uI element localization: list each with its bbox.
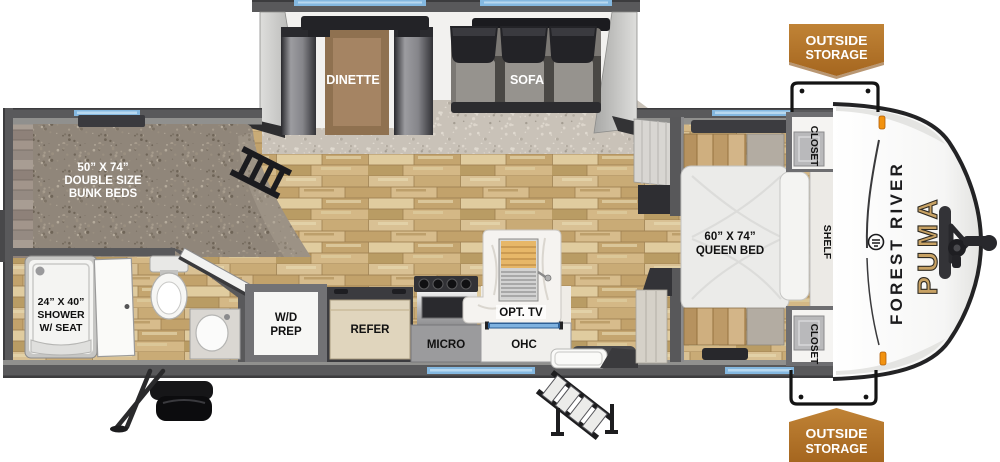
svg-text:PREP: PREP <box>270 326 302 338</box>
svg-text:PUMA: PUMA <box>912 195 943 295</box>
svg-text:CLOSET: CLOSET <box>808 126 819 167</box>
svg-text:SHOWER: SHOWER <box>37 309 85 321</box>
svg-text:STORAGE: STORAGE <box>806 47 868 62</box>
svg-text:SHELF: SHELF <box>821 225 833 260</box>
svg-text:W/ SEAT: W/ SEAT <box>40 322 84 334</box>
svg-text:QUEEN BED: QUEEN BED <box>696 245 764 257</box>
svg-text:DOUBLE SIZE: DOUBLE SIZE <box>64 175 142 187</box>
svg-text:OUTSIDE: OUTSIDE <box>806 33 868 48</box>
svg-text:W/D: W/D <box>275 312 297 324</box>
svg-text:BUNK BEDS: BUNK BEDS <box>69 188 138 200</box>
svg-text:CLOSET: CLOSET <box>808 324 819 365</box>
svg-text:SOFA: SOFA <box>510 73 544 87</box>
svg-text:50” X 74”: 50” X 74” <box>77 162 128 174</box>
svg-text:60” X 74”: 60” X 74” <box>704 231 755 243</box>
svg-text:FOREST RIVER: FOREST RIVER <box>887 161 906 325</box>
svg-text:REFER: REFER <box>351 324 391 336</box>
svg-text:OUTSIDE: OUTSIDE <box>806 426 868 441</box>
svg-text:STORAGE: STORAGE <box>806 441 868 456</box>
svg-text:OPT. TV: OPT. TV <box>499 307 543 319</box>
svg-text:MICRO: MICRO <box>427 339 465 351</box>
svg-text:24” X 40”: 24” X 40” <box>38 296 85 308</box>
svg-text:OHC: OHC <box>511 339 537 351</box>
svg-text:DINETTE: DINETTE <box>326 73 379 87</box>
